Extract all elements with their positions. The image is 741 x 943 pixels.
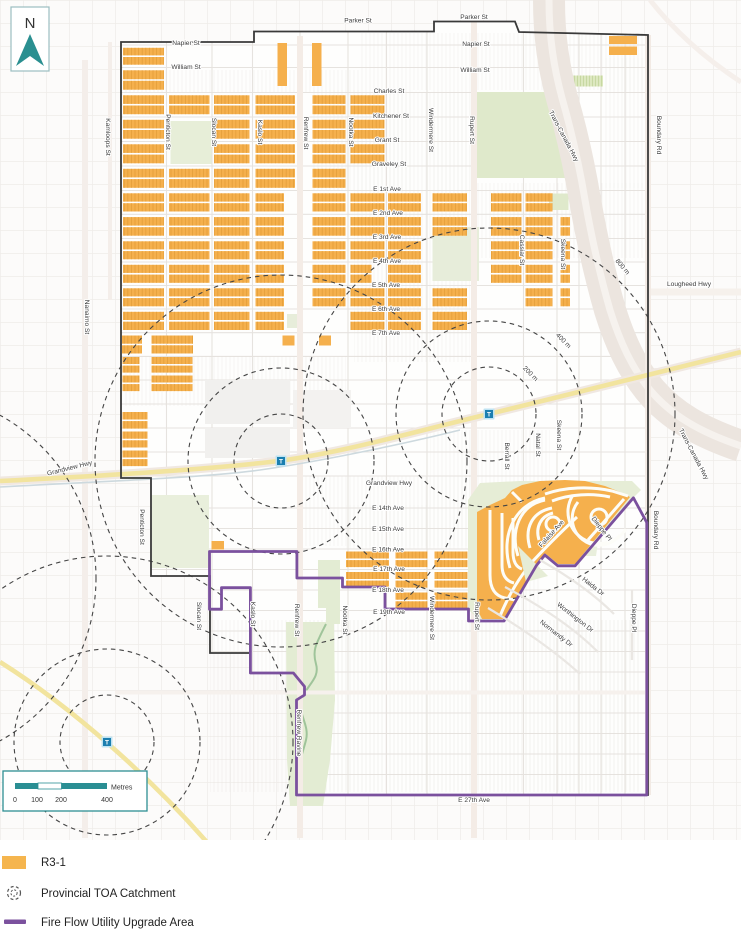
svg-text:Renfrew St: Renfrew St	[302, 117, 309, 150]
svg-text:200: 200	[55, 797, 67, 804]
svg-text:Windermere St: Windermere St	[427, 108, 434, 152]
svg-text:Rupert St: Rupert St	[468, 116, 475, 144]
svg-text:Grant St: Grant St	[375, 137, 400, 144]
svg-text:Provincial TOA Catchment: Provincial TOA Catchment	[41, 888, 176, 900]
svg-text:Parker St: Parker St	[460, 14, 488, 21]
svg-text:E 7th Ave: E 7th Ave	[372, 330, 400, 337]
svg-text:Windermere St: Windermere St	[428, 596, 435, 640]
svg-text:T: T	[105, 739, 109, 746]
svg-text:Kaslo St: Kaslo St	[256, 120, 263, 145]
svg-text:Charles St: Charles St	[374, 88, 405, 95]
svg-text:Renfrew St: Renfrew St	[293, 604, 300, 637]
svg-text:Nanaimo St: Nanaimo St	[83, 300, 90, 335]
svg-text:E 5th Ave: E 5th Ave	[372, 282, 400, 289]
svg-text:Dieppe Pl: Dieppe Pl	[630, 604, 637, 633]
svg-text:Graveley St: Graveley St	[372, 161, 407, 168]
svg-text:E 3rd Ave: E 3rd Ave	[373, 234, 402, 241]
svg-text:T: T	[279, 458, 283, 465]
svg-text:R3-1: R3-1	[41, 857, 66, 869]
svg-text:T: T	[487, 411, 491, 418]
svg-text:0: 0	[13, 797, 17, 804]
svg-text:Parker St: Parker St	[344, 18, 372, 25]
svg-text:N: N	[25, 15, 36, 32]
svg-text:Slocan St: Slocan St	[210, 118, 217, 146]
svg-text:William St: William St	[171, 64, 200, 71]
svg-text:Grandview Hwy: Grandview Hwy	[366, 480, 413, 487]
svg-text:Lougheed Hwy: Lougheed Hwy	[667, 281, 712, 288]
svg-text:E 18th Ave: E 18th Ave	[372, 587, 404, 594]
svg-text:William St: William St	[460, 67, 489, 74]
svg-text:Skeena St: Skeena St	[559, 239, 566, 270]
svg-text:Berrall St: Berrall St	[503, 442, 510, 469]
svg-text:E 15th Ave: E 15th Ave	[372, 526, 404, 533]
svg-text:E 4th Ave: E 4th Ave	[373, 258, 401, 265]
svg-text:Nootka St: Nootka St	[341, 606, 348, 635]
svg-text:Skeena St: Skeena St	[555, 420, 562, 451]
svg-text:Penticton St: Penticton St	[164, 114, 171, 150]
svg-text:Kitchener St: Kitchener St	[373, 113, 409, 120]
svg-text:E 17th Ave: E 17th Ave	[373, 566, 405, 573]
svg-text:400: 400	[101, 797, 113, 804]
svg-text:Fire Flow Utility Upgrade Area: Fire Flow Utility Upgrade Area	[41, 917, 194, 929]
svg-text:Napier St: Napier St	[462, 41, 490, 48]
svg-text:Slocan St: Slocan St	[195, 602, 202, 630]
svg-text:Napier St: Napier St	[172, 40, 200, 47]
svg-text:Kaslo St: Kaslo St	[249, 602, 256, 627]
svg-text:E 27th Ave: E 27th Ave	[458, 797, 490, 804]
svg-text:E 19th Ave: E 19th Ave	[373, 609, 405, 616]
svg-text:Natal St: Natal St	[534, 433, 541, 457]
svg-text:Renfrew Ravine: Renfrew Ravine	[295, 710, 302, 757]
svg-text:E 16th Ave: E 16th Ave	[372, 547, 404, 554]
svg-text:E 6th Ave: E 6th Ave	[372, 306, 400, 313]
svg-text:E 14th Ave: E 14th Ave	[372, 505, 404, 512]
svg-text:Penticton St: Penticton St	[138, 509, 145, 545]
svg-text:Rupert St: Rupert St	[473, 602, 480, 630]
svg-text:Kamloops St: Kamloops St	[104, 118, 111, 156]
svg-text:Cassiar St: Cassiar St	[518, 235, 525, 266]
svg-text:Boundary Rd: Boundary Rd	[655, 116, 662, 155]
svg-text:Metres: Metres	[111, 785, 133, 792]
svg-text:100: 100	[31, 797, 43, 804]
svg-text:E 1st Ave: E 1st Ave	[373, 186, 401, 193]
svg-text:Nootka St: Nootka St	[347, 118, 354, 147]
svg-text:Boundary Rd: Boundary Rd	[652, 511, 659, 550]
svg-text:E 2nd Ave: E 2nd Ave	[373, 210, 403, 217]
